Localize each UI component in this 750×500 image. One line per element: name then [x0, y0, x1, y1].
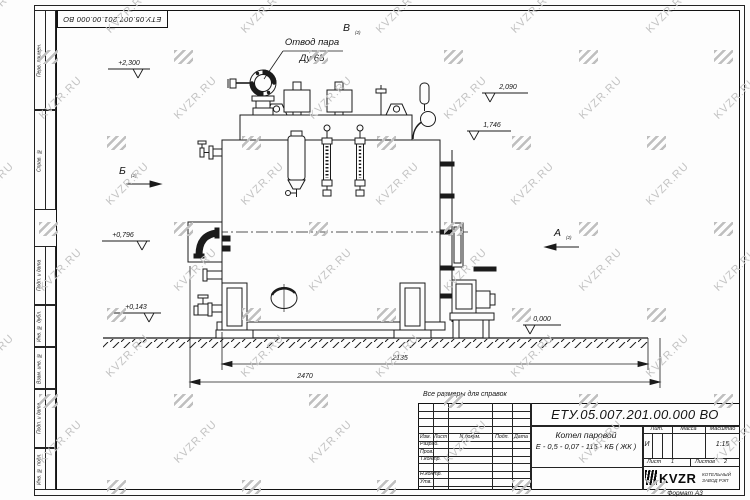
- title-doc-number: ЕТУ.05.007.201.00.000 ВО: [530, 408, 740, 421]
- ground-line: [103, 338, 648, 348]
- view-marker-v: В: [343, 23, 350, 34]
- elevation-0143: +0,143: [110, 304, 162, 311]
- col-header-podp: Подп.: [492, 435, 512, 440]
- lit-value: И: [642, 441, 652, 448]
- mass-header: Масса: [672, 427, 705, 433]
- product-name-line1: Котел паровой: [532, 431, 640, 440]
- elevation-0796: +0,796: [98, 232, 148, 239]
- reference-note: Все размеры для справок: [423, 391, 507, 398]
- view-marker-b-ref: (2): [131, 174, 137, 179]
- row-label-utv: Утв.: [420, 480, 432, 485]
- view-marker-v-ref: (2): [355, 31, 361, 36]
- col-header-ndoc: N докум.: [448, 435, 492, 440]
- row-label-prov: Пров.: [420, 450, 434, 455]
- steam-outlet-callout-line1: Отвод пара: [272, 38, 352, 48]
- view-marker-b: Б: [119, 166, 126, 177]
- format-note: Формат А3: [655, 491, 715, 498]
- col-header-list: Лист: [433, 435, 448, 440]
- col-header-izm: Изм.: [418, 435, 433, 440]
- right-fittings: [440, 150, 496, 338]
- row-label-tkontr: Т.контр.: [420, 457, 441, 462]
- sheets-label: Листов: [695, 460, 715, 466]
- scale-value: 1:15: [705, 441, 740, 448]
- sheet-value: 1: [671, 460, 674, 466]
- view-marker-a-ref: (2): [566, 236, 572, 241]
- dim-2470: 2470: [280, 373, 330, 380]
- row-label-nkontr: Н.контр.: [420, 472, 442, 477]
- sheets-value: 2: [724, 460, 727, 466]
- company-logo-icon: [645, 470, 657, 485]
- view-marker-a: А: [554, 228, 561, 239]
- col-header-data: Дата: [512, 435, 530, 440]
- elevation-2300: +2,300: [104, 60, 154, 67]
- company-logo-text: KVZR: [659, 471, 696, 486]
- company-tagline-line1: КОТЕЛЬНЫЙ: [702, 472, 731, 478]
- elevation-2090: 2,090: [485, 84, 531, 91]
- elevation-1746: 1,746: [470, 122, 514, 129]
- drawing-sheet: Перв. примен. Справ. № Подп. и дата Инв.…: [0, 0, 750, 500]
- company-tagline-line2: ЗАВОД РЭП: [702, 478, 731, 484]
- product-name-line2: Е - 0,5 - 0,07 - 115 - КБ ( ЖК ): [532, 443, 640, 451]
- lit-header: Лит.: [642, 427, 672, 433]
- sheet-label: Лист: [647, 460, 661, 466]
- scale-header: Масштаб: [705, 427, 740, 433]
- steam-outlet-callout-line2: Ду 65: [272, 54, 352, 64]
- row-label-razrab: Разраб.: [420, 442, 439, 447]
- boiler-casing: [196, 140, 470, 338]
- company-tagline: КОТЕЛЬНЫЙ ЗАВОД РЭП: [702, 472, 731, 483]
- elevation-0000: 0,000: [520, 316, 564, 323]
- dim-2135: 2135: [375, 355, 425, 362]
